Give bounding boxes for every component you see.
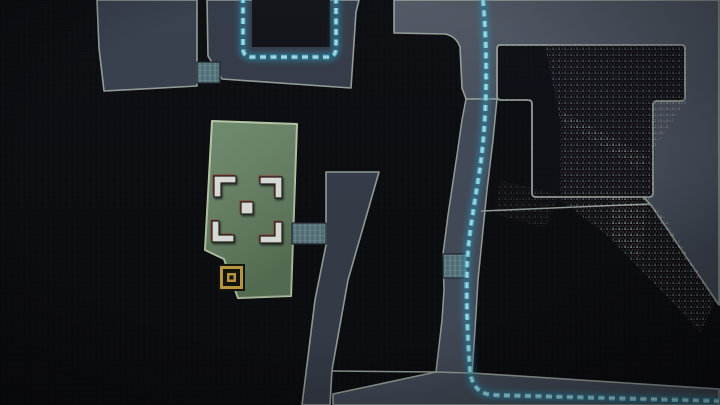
dark-room-bottom-outline [332, 371, 437, 372]
game-map-screen [0, 0, 720, 405]
door-connector-objective-room [292, 223, 326, 244]
door-connector-top-left [197, 62, 220, 83]
exit-point-marker-icon[interactable] [218, 264, 245, 291]
door-hatch [292, 223, 326, 244]
marker-center-dot [241, 202, 253, 214]
exit-marker-core [230, 276, 234, 280]
door-hatch [197, 62, 220, 83]
map-canvas[interactable] [0, 0, 720, 405]
loop-corridor-inner-void [252, 0, 330, 47]
room-top-left-shape [97, 0, 197, 91]
